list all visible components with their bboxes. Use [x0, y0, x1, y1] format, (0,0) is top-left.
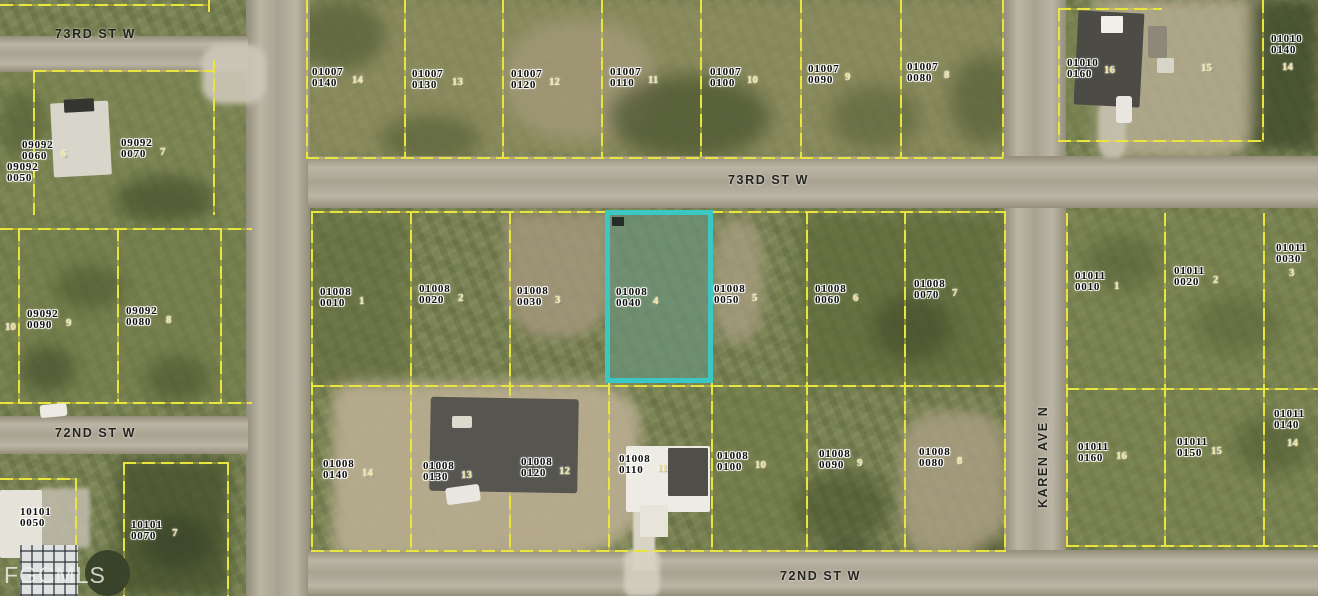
parcel-apn-line2: 0070	[131, 531, 163, 542]
parcel-label-09092-0070: 090920070	[121, 138, 153, 160]
lot-number-marker: 14	[1282, 61, 1293, 73]
parcel-label-01008-0090: 010080090	[819, 449, 851, 471]
parcel-apn-line2: 0080	[126, 317, 158, 328]
street-label: 72ND ST W	[55, 426, 136, 440]
parcel-apn-line2: 0140	[1271, 45, 1303, 56]
parcel-label-09092-0060: 090920060	[22, 140, 54, 162]
lot-number-marker: 4	[653, 295, 659, 307]
parcel-apn-line2: 0120	[521, 468, 553, 479]
parcel-apn-line2: 0040	[616, 298, 648, 309]
parcel-label-01011-0150: 010110150	[1177, 437, 1208, 459]
parcel-apn-line2: 0090	[27, 320, 59, 331]
parcel-apn-line2: 0120	[511, 80, 543, 91]
parcel-apn-line2: 0050	[714, 295, 746, 306]
parcel-apn-line2: 0030	[517, 297, 549, 308]
parcel-label-01011-0030: 010110030	[1276, 243, 1307, 265]
lot-number-marker: 14	[362, 467, 373, 479]
lot-number-marker: 11	[657, 462, 667, 474]
lot-number-marker: 10	[5, 321, 16, 333]
parcel-label-01010-0160: 010100160	[1067, 58, 1099, 80]
parcel-label-01011-0160: 010110160	[1078, 442, 1109, 464]
parcel-label-01008-0140: 010080140	[323, 459, 355, 481]
lot-number-marker: 12	[549, 76, 560, 88]
lot-number-marker: 9	[857, 457, 863, 469]
parcel-apn-line2: 0130	[412, 80, 444, 91]
parcel-label-01008-0080: 010080080	[919, 447, 951, 469]
street-label: 73RD ST W	[728, 173, 809, 187]
parcel-label-09092-0050: 090920050	[7, 162, 39, 184]
lot-number-marker: 3	[1289, 267, 1295, 279]
parcel-label-01007-0090: 010070090	[808, 64, 840, 86]
parcel-apn-line2: 0140	[1274, 420, 1305, 431]
lot-number-marker: 8	[944, 69, 950, 81]
lot-number-marker: 7	[160, 146, 166, 158]
lot-number-marker: 16	[1116, 450, 1127, 462]
parcel-apn-line2: 0010	[1075, 282, 1106, 293]
parcel-label-01011-0020: 010110020	[1174, 266, 1205, 288]
parcel-label-01007-0100: 010070100	[710, 67, 742, 89]
parcel-apn-line2: 0010	[320, 298, 352, 309]
lot-number-marker: 14	[1287, 437, 1298, 449]
lot-number-marker: 12	[559, 465, 570, 477]
parcel-apn-line2: 0110	[610, 78, 642, 89]
parcel-label-01008-0050: 010080050	[714, 284, 746, 306]
lot-number-marker: 7	[952, 287, 958, 299]
lot-number-marker: 13	[452, 76, 463, 88]
parcel-apn-line2: 0050	[7, 173, 39, 184]
parcel-label-10101-0070: 101010070	[131, 520, 163, 542]
parcel-apn-line2: 0080	[907, 73, 939, 84]
parcel-label-09092-0080: 090920080	[126, 306, 158, 328]
parcel-apn-line2: 0050	[20, 518, 52, 529]
mls-watermark: FGCMLS	[4, 562, 106, 589]
parcel-label-01008-0120: 010080120	[521, 457, 553, 479]
parcel-label-01008-0040: 010080040	[616, 287, 648, 309]
parcel-apn-line2: 0160	[1078, 453, 1109, 464]
parcel-label-01007-0080: 010070080	[907, 62, 939, 84]
lot-number-marker: 9	[845, 71, 851, 83]
parcel-apn-line2: 0090	[819, 460, 851, 471]
parcel-apn-line2: 0020	[419, 295, 451, 306]
lot-number-marker: 3	[555, 294, 561, 306]
lot-number-marker: 11	[648, 74, 658, 86]
parcel-label-01008-0130: 010080130	[423, 461, 455, 483]
parcel-apn-line2: 0110	[619, 465, 651, 476]
street-label: 72ND ST W	[780, 569, 861, 583]
lot-number-marker: 15	[1211, 445, 1222, 457]
lot-number-marker: 9	[66, 317, 72, 329]
parcel-apn-line2: 0150	[1177, 448, 1208, 459]
parcel-label-01008-0100: 010080100	[717, 451, 749, 473]
lot-number-marker: 10	[755, 459, 766, 471]
parcel-label-01008-0010: 010080010	[320, 287, 352, 309]
lot-number-marker: 5	[752, 292, 758, 304]
lot-number-marker: 8	[166, 314, 172, 326]
parcel-apn-line2: 0070	[914, 290, 946, 301]
parcel-apn-line2: 0070	[121, 149, 153, 160]
parcel-apn-line2: 0140	[312, 78, 344, 89]
parcel-apn-line2: 0140	[323, 470, 355, 481]
parcel-label-01007-0130: 010070130	[412, 69, 444, 91]
parcel-apn-line2: 0160	[1067, 69, 1099, 80]
lot-number-marker: 14	[352, 74, 363, 86]
parcel-label-01010-0140: 010100140	[1271, 34, 1303, 56]
parcel-label-01008-0110: 010080110	[619, 454, 651, 476]
parcel-label-01011-0140: 010110140	[1274, 409, 1305, 431]
parcel-label-09092-0090: 090920090	[27, 309, 59, 331]
parcel-label-01008-0020: 010080020	[419, 284, 451, 306]
lot-number-marker: 15	[1201, 62, 1212, 74]
parcel-apn-line2: 0130	[423, 472, 455, 483]
parcel-label-01007-0140: 010070140	[312, 67, 344, 89]
lot-number-marker: 1	[1114, 280, 1120, 292]
parcel-apn-line2: 0100	[710, 78, 742, 89]
lot-number-marker: 8	[957, 455, 963, 467]
aerial-parcel-map: 0909200606090920070709092005010090920090…	[0, 0, 1318, 596]
lot-number-marker: 6	[61, 148, 67, 160]
lot-number-marker: 1	[359, 295, 365, 307]
parcel-label-01008-0060: 010080060	[815, 284, 847, 306]
parcel-label-01008-0030: 010080030	[517, 286, 549, 308]
parcel-apn-line2: 0090	[808, 75, 840, 86]
lot-number-marker: 16	[1104, 64, 1115, 76]
lot-number-marker: 2	[458, 292, 464, 304]
parcel-apn-line2: 0100	[717, 462, 749, 473]
parcel-apn-line2: 0080	[919, 458, 951, 469]
lot-number-marker: 2	[1213, 274, 1219, 286]
parcel-apn-line2: 0020	[1174, 277, 1205, 288]
street-label: KAREN AVE N	[1036, 406, 1050, 508]
parcel-label-01011-0010: 010110010	[1075, 271, 1106, 293]
lot-number-marker: 10	[747, 74, 758, 86]
lot-number-marker: 7	[172, 527, 178, 539]
parcel-label-01007-0110: 010070110	[610, 67, 642, 89]
parcel-label-10101-0050: 101010050	[20, 507, 52, 529]
labels-layer: 0909200606090920070709092005010090920090…	[0, 0, 1318, 596]
lot-number-marker: 6	[853, 292, 859, 304]
lot-number-marker: 13	[461, 469, 472, 481]
parcel-label-01007-0120: 010070120	[511, 69, 543, 91]
parcel-apn-line2: 0030	[1276, 254, 1307, 265]
parcel-apn-line2: 0060	[815, 295, 847, 306]
street-label: 73RD ST W	[55, 27, 136, 41]
parcel-label-01008-0070: 010080070	[914, 279, 946, 301]
